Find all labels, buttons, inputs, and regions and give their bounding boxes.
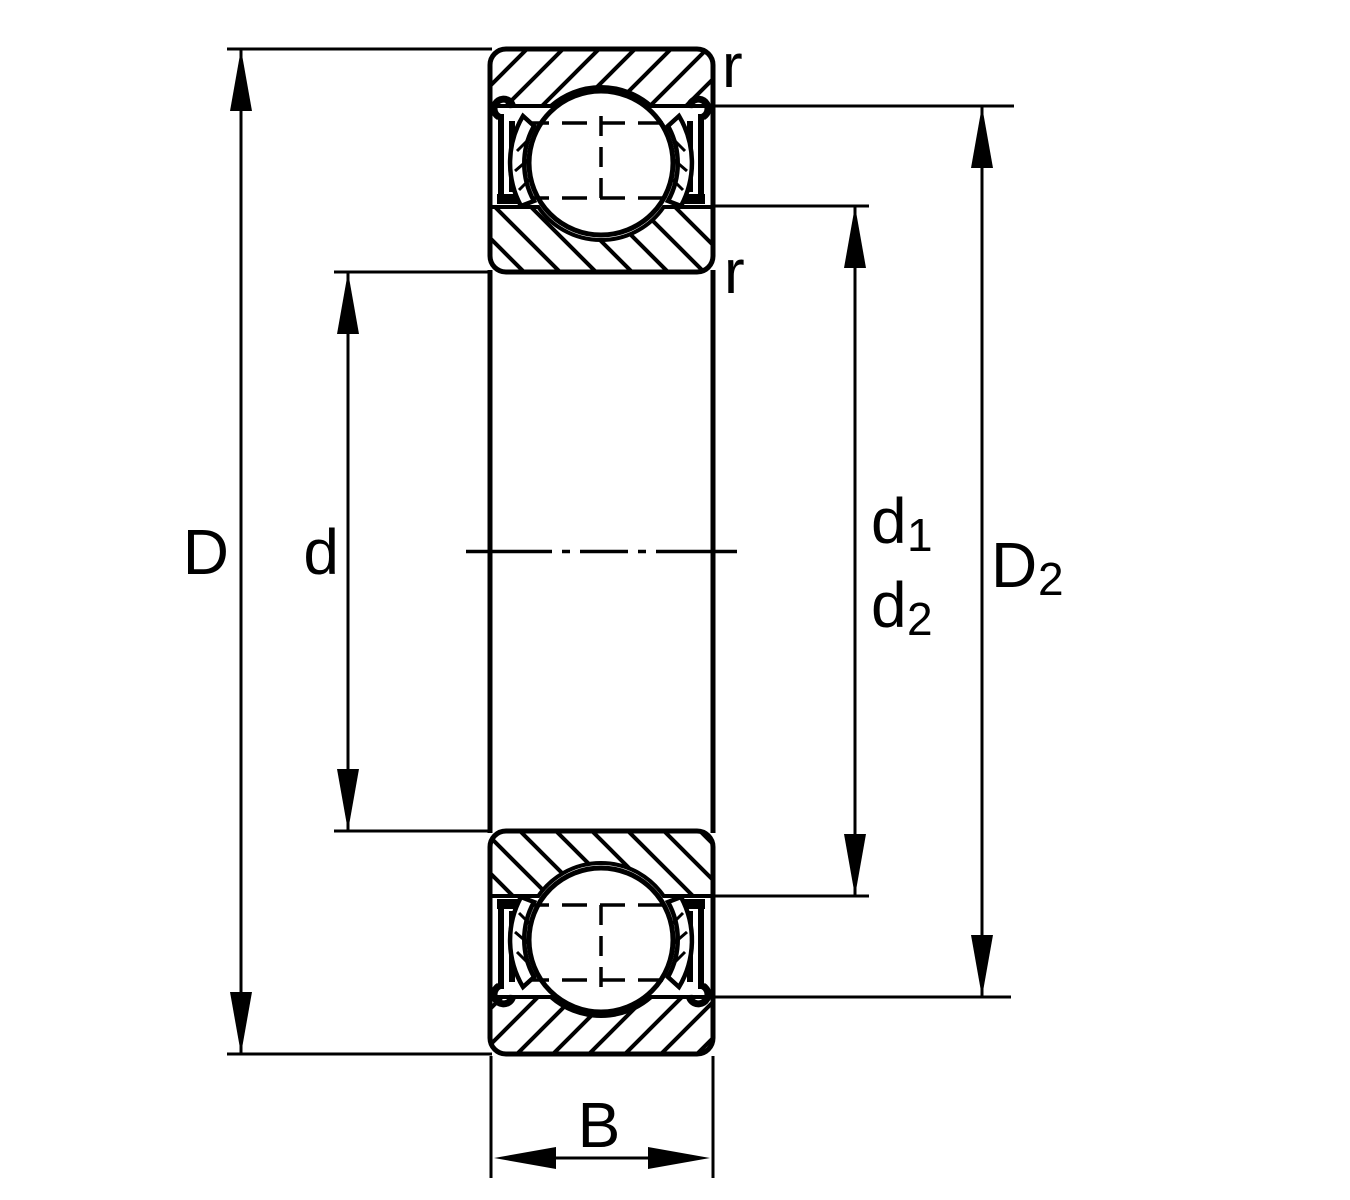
bearing-bottom-section [486, 827, 717, 1058]
label-B: B [578, 1089, 621, 1161]
label-r-inner: r [724, 238, 745, 307]
label-d1-sub: 1 [907, 509, 933, 561]
bearing-diagram-page: D d d 1 d 2 D 2 B r r [0, 0, 1350, 1200]
label-D2-base: D [991, 529, 1037, 601]
label-d2-sub: 2 [907, 593, 933, 645]
label-r-outer: r [722, 32, 743, 101]
label-d1-base: d [871, 485, 907, 557]
label-d2-base: d [871, 569, 907, 641]
label-D: D [183, 516, 229, 588]
label-D2-sub: 2 [1038, 553, 1064, 605]
label-d: d [303, 516, 339, 588]
bearing-diagram-svg: D d d 1 d 2 D 2 B r r [0, 0, 1350, 1200]
bearing-top-section [486, 45, 717, 276]
